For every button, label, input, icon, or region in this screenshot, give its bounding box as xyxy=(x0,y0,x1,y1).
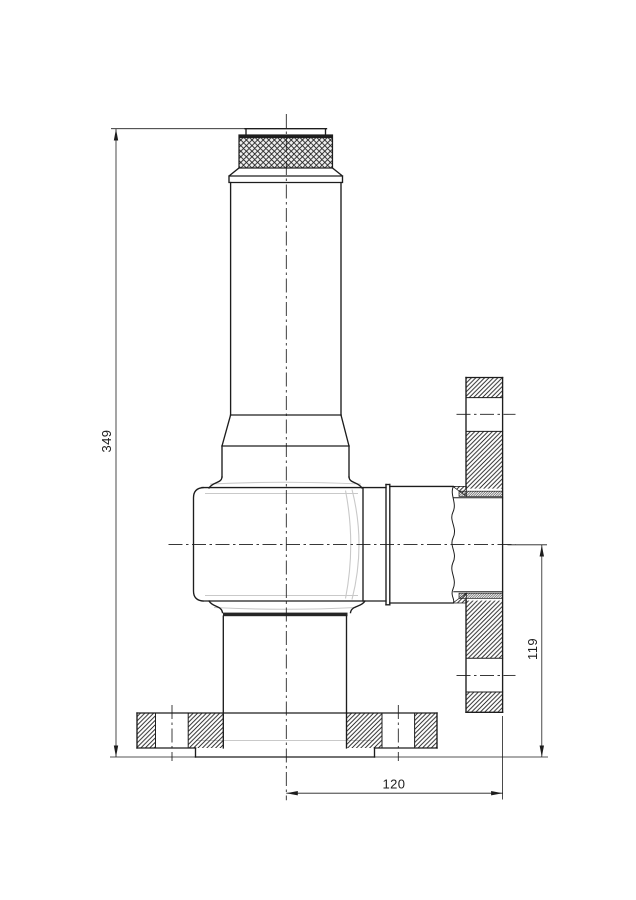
outlet-flange-hatch-bottom xyxy=(466,692,503,712)
gland-shoulder-left xyxy=(209,477,222,488)
inlet-flange-hatch-outer-right xyxy=(415,713,437,748)
knurled-cap xyxy=(229,129,343,183)
dimension-outlet-offset: 120 xyxy=(286,716,502,800)
dim-label-outlet-height: 119 xyxy=(525,638,540,660)
gland-shoulder-right xyxy=(349,477,362,488)
dim-label-outlet-offset: 120 xyxy=(383,777,406,792)
spring-bonnet xyxy=(209,183,362,489)
outlet-flange-hatch-top xyxy=(466,378,503,398)
inlet-flange xyxy=(137,616,437,757)
knurl-band xyxy=(239,135,333,168)
inlet-flange-hatch-outer-left xyxy=(137,713,156,748)
dim-label-overall-height: 349 xyxy=(99,430,114,453)
centerlines xyxy=(169,114,516,800)
seat-shoulder-right xyxy=(351,601,366,613)
seat-joint-band xyxy=(223,613,348,617)
thread-strip-top xyxy=(459,491,503,496)
thread-strip-bottom xyxy=(459,593,503,598)
valve-body xyxy=(194,488,387,617)
dimension-outlet-height: 119 xyxy=(375,545,549,757)
drawing-sheet: 349 119 120 xyxy=(0,0,636,900)
section-hatching xyxy=(137,378,503,749)
seat-shoulder-left xyxy=(209,601,223,613)
valve-drawing: 349 119 120 xyxy=(0,0,636,900)
